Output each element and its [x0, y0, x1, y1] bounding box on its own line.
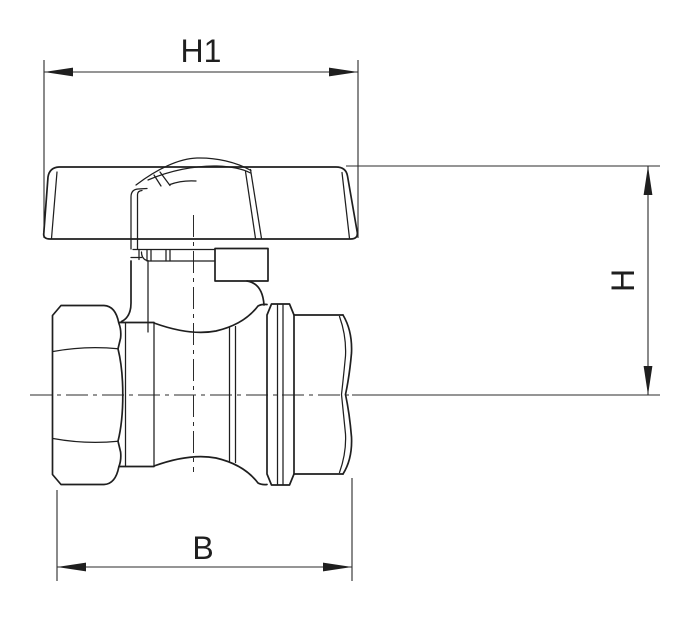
gland-band-bottom-edge: [142, 252, 216, 261]
stem-nut-block: [215, 249, 268, 282]
handle-hub-right-edge: [251, 170, 262, 239]
valve-stem-neck: [122, 249, 269, 333]
handle-hub-left-inner-edge: [138, 191, 143, 250]
dimension-h: H: [346, 166, 660, 395]
neck-left-edge-with-fillet: [122, 261, 132, 322]
body-dome-top-outline: [154, 304, 267, 332]
dimension-label-b: B: [192, 530, 213, 566]
handle-left-edge-inner-line: [52, 172, 58, 239]
centerlines: [30, 215, 352, 472]
handle-outline: [44, 167, 358, 239]
valve-handle: [44, 158, 358, 249]
h-arrowhead-top: [644, 166, 653, 195]
hex-nut-face-arc-lower: [53, 439, 118, 443]
neck-right-fillet: [247, 281, 264, 305]
b-arrowhead-right: [323, 563, 352, 572]
handle-hub-right-inner-edge: [246, 172, 256, 239]
h-arrowhead-bottom: [644, 366, 653, 395]
dimension-label-h1: H1: [181, 33, 222, 69]
ball-valve-technical-drawing: H1 H B: [0, 0, 700, 638]
handle-hub-left-edge: [131, 189, 147, 250]
hex-nut-face-arc-upper: [53, 348, 118, 352]
drawing-canvas: H1 H B: [0, 0, 700, 638]
handle-hub-detail-line-2: [170, 181, 196, 185]
b-arrowhead-left: [57, 563, 86, 572]
dimension-b: B: [57, 478, 352, 581]
h1-arrowhead-right: [329, 68, 358, 77]
body-dome-bottom-outline: [154, 457, 267, 485]
dimension-label-h: H: [605, 269, 641, 292]
h1-arrowhead-left: [44, 68, 73, 77]
dimension-h1: H1: [44, 33, 358, 238]
